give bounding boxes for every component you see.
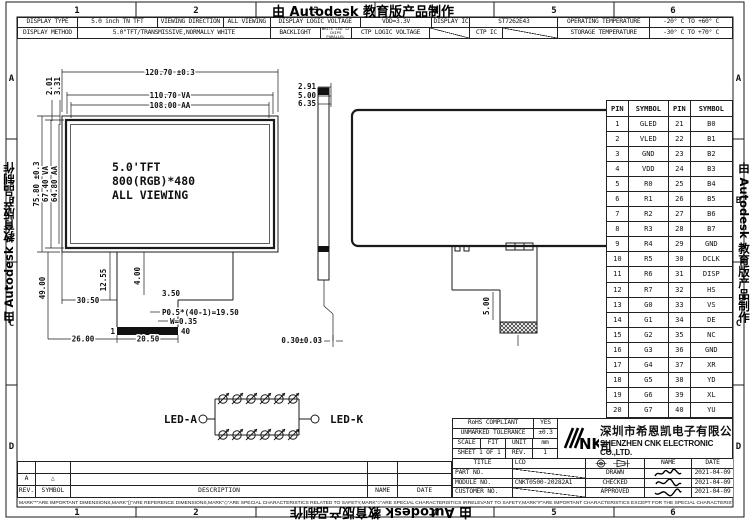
scale-label: SCALE [453,439,481,449]
panel-label-resolution: 800(RGB)*480 [112,174,195,188]
pin-number-cell: 21 [669,117,691,132]
pin-row: 12R732HS [607,283,732,298]
rohs-value: YES [534,419,558,429]
pin-number-cell: 24 [669,162,691,177]
pin-number-cell: 36 [669,343,691,358]
pin-number-cell: 34 [669,313,691,328]
logo-text: NK [579,435,599,453]
pin-symbol-cell: R7 [629,283,669,298]
pin-number-cell: 35 [669,328,691,343]
pin-number-cell: 33 [669,298,691,313]
pin-number-cell: 30 [669,252,691,267]
pin-row: 13G033VS [607,298,732,313]
drawn-date: 2021-04-09 [692,469,733,479]
checked-date: 2021-04-09 [692,479,733,489]
pin-row: 8R328B7 [607,222,732,237]
pin-symbol-cell: R2 [629,207,669,222]
revision-cell [398,474,452,486]
zone-row-label: A [9,74,15,84]
checked-signature [645,479,692,489]
drawn-label: DRAWN [586,469,646,479]
pin-symbol-cell: GND [691,343,732,358]
pin-number-cell: 22 [669,132,691,147]
pin-symbol-cell: G3 [629,343,669,358]
pin-number-cell: 8 [607,222,629,237]
panel-label-size: 5.0'TFT [112,160,161,174]
company-logo: NK [561,422,599,456]
pin-number-cell: 28 [669,222,691,237]
spec-label: CTP LOGIC VOLTAGE [352,28,431,39]
zone-row-label: D [736,442,742,452]
spec-label: CTP IC [470,28,503,39]
pin-number-cell: 4 [607,162,629,177]
spec-value: ALL VIEWING [224,18,271,28]
pin-row: 17G437XR [607,358,732,373]
dim-overall-height: 75.80 ±0.3 [32,161,41,207]
revision-rev: A [18,474,36,486]
drawing-sheet: 1 2 3 4 5 6 1 2 3 4 5 6 A B C D A B C D … [0,0,750,523]
pin-number-cell: 1 [607,117,629,132]
spec-label: BACKLIGHT [271,28,321,39]
pin-row: 7R227B6 [607,207,732,222]
pin-row: 20G740YU [607,403,732,418]
projection-symbol [586,459,646,469]
pin-row: 16G336GND [607,343,732,358]
tolerance-label: UNMARKED TOLERANCE [453,429,534,439]
pin-symbol-cell: R1 [629,192,669,207]
pin-symbol-cell: DE [691,313,732,328]
name-header: NAME [645,459,692,469]
pin-symbol-cell: G4 [629,358,669,373]
pin-symbol-cell: R0 [629,177,669,192]
dim-pin-pitch: P0.5*(40-1)=19.50 [162,308,239,317]
rohs-label: RoHS COMPLIANT [453,419,534,429]
dim-pin-width: W=0.35 [170,317,197,326]
pin-symbol-cell: G0 [629,298,669,313]
pin-number-cell: 40 [669,403,691,418]
back-view: 5.00 [352,104,632,346]
pin-last-label: 40 [181,327,191,336]
spec-value: WHITE LED 12 CHIPS PARALLEL [321,28,352,39]
revision-empty-row [18,462,452,474]
dim-top-right-1: 2.91 [298,82,317,91]
revision-symbol: △ [36,474,71,486]
pin-first-label: 1 [110,327,115,336]
zone-col-label: 1 [74,6,79,16]
pin-number-cell: 5 [607,177,629,192]
pin-number-cell: 25 [669,177,691,192]
pin-number-cell: 18 [607,373,629,388]
revision-table: A △ REV. SYMBOL DESCRIPTION NAME DATE [17,461,452,498]
spec-label: DISPLAY METHOD [18,28,78,39]
dim-bottom-2: 20.50 [137,335,160,344]
pin-row: 3GND23B2 [607,147,732,162]
drawn-signature [645,469,692,479]
scale-value: FIT [481,439,506,449]
title-label: TITLE [453,459,513,469]
pin-symbol-cell: B6 [691,207,732,222]
pin-number-cell: 31 [669,267,691,282]
pin-symbol-cell: XR [691,358,732,373]
revision-cell [71,474,368,486]
pin-symbol-cell: XL [691,388,732,403]
pin-number-cell: 39 [669,388,691,403]
dim-va-width: 110.70 VA [150,91,191,100]
pin-row: 14G134DE [607,313,732,328]
watermark-top: 由 Autodesk 教育版产品制作 [272,1,454,20]
sheet-label: SHEET 1 OF 1 [453,449,506,459]
dim-neck-2: 4.00 [133,266,142,285]
pin-symbol-cell: B3 [691,162,732,177]
module-no-value: CNKT0500-20282A1 [513,479,586,489]
zone-col-label: 5 [551,6,556,16]
pin-symbol-cell: G7 [629,403,669,418]
pin-number-cell: 38 [669,373,691,388]
watermark-left: 由 Autodesk 教育版产品制作 [1,162,17,323]
pin-symbol-cell: GND [691,237,732,252]
pin-number-cell: 37 [669,358,691,373]
spec-value: 5.0 inch TN TFT [78,18,158,28]
dim-aa-width: 108.00 AA [150,101,191,110]
pin-number-cell: 13 [607,298,629,313]
pin-symbol-cell: DISP [691,267,732,282]
spec-value: -30° C TO +70° C [650,28,733,39]
watermark-bottom: 由 Autodesk 教育版产品制作 [290,504,472,523]
zone-col-label: 1 [74,508,79,518]
pin-number-cell: 6 [607,192,629,207]
part-no-value [513,469,586,479]
pin-row: 10R530DCLK [607,252,732,267]
pin-symbol-cell: G6 [629,388,669,403]
company-block: NK 深圳市希恩凯电子有限公司 SHENZHEN CNK ELECTRONIC … [558,419,733,459]
zone-col-label: 2 [193,6,198,16]
pin-symbol-cell: DCLK [691,252,732,267]
zone-col-label: 6 [670,6,675,16]
pin-row: 2VLED22B1 [607,132,732,147]
pin-number-cell: 26 [669,192,691,207]
dim-neck-3: 3.50 [162,289,181,298]
spec-label: VIEWING DIRECTION [158,18,224,28]
pin-row: 18G538YD [607,373,732,388]
revision-cell [368,462,398,474]
pin-row: 4VDD24B3 [607,162,732,177]
dim-top-left-2: 3.31 [53,76,62,95]
pin-number-cell: 27 [669,207,691,222]
dim-aa-height: 64.80 AA [50,165,59,202]
part-no-label: PART NO. [453,469,513,479]
pin-symbol-cell: YU [691,403,732,418]
pin-number-cell: 7 [607,207,629,222]
title-value: LCD [513,459,586,469]
pin-symbol-cell: B4 [691,177,732,192]
watermark-right: 由 Autodesk 教育版产品制作 [736,162,750,323]
pin-number-cell: 16 [607,343,629,358]
pin-header: PIN [607,101,629,117]
pin-symbol-cell: R3 [629,222,669,237]
dim-bottom-1: 26.00 [72,335,95,344]
spec-empty-cell [430,28,470,39]
company-name-en: SHENZHEN CNK ELECTRONIC CO.,LTD. [600,439,732,457]
revision-cell [368,474,398,486]
pin-row: 1GLED21B0 [607,117,732,132]
zone-col-label: 2 [193,508,198,518]
pin-header: SYMBOL [629,101,669,117]
pin-number-cell: 17 [607,358,629,373]
dim-neck-1: 12.55 [99,269,108,292]
spec-value: -20° C TO +60° C [650,18,733,28]
revision-cell [36,462,71,474]
spec-value: 5.0"TFT/TRANSMISSIVE,NORMALLY WHITE [78,28,271,39]
spec-value: ST7262E43 [470,18,558,28]
pin-row: 15G235NC [607,328,732,343]
pin-number-cell: 2 [607,132,629,147]
pin-table-body: 1GLED21B02VLED22B13GND23B24VDD24B35R025B… [607,117,732,418]
pin-symbol-cell: NC [691,328,732,343]
pin-row: 5R025B4 [607,177,732,192]
rev-value: 1 [533,449,558,459]
dim-va-height: 67.40 VA [41,165,50,202]
pin-header: PIN [669,101,691,117]
pin-number-cell: 10 [607,252,629,267]
spec-empty-cell [503,28,558,39]
pin-row: 19G639XL [607,388,732,403]
pin-number-cell: 20 [607,403,629,418]
pin-number-cell: 11 [607,267,629,282]
tolerance-value: ±0.3 [534,429,558,439]
zone-col-label: 6 [670,508,675,518]
revision-cell [71,462,368,474]
pin-symbol-cell: HS [691,283,732,298]
spec-label: DISPLAY TYPE [18,18,78,28]
pin-symbol-cell: B1 [691,132,732,147]
pin-symbol-cell: G1 [629,313,669,328]
spec-row-2: DISPLAY METHOD 5.0"TFT/TRANSMISSIVE,NORM… [18,28,733,39]
rev-label: REV. [506,449,533,459]
pin-symbol-cell: VDD [629,162,669,177]
zone-col-label: 5 [551,508,556,518]
led-cathode-label: LED-K [330,413,363,426]
pin-symbol-cell: VLED [629,132,669,147]
led-circuit: LED-A LED-K [164,393,364,440]
pin-symbol-cell: R6 [629,267,669,282]
dim-thickness: 0.30±0.03 [281,336,322,345]
pin-number-cell: 15 [607,328,629,343]
led-anode-label: LED-A [164,413,197,426]
pin-symbol-cell: R4 [629,237,669,252]
zone-row-label: D [9,442,15,452]
pin-number-cell: 23 [669,147,691,162]
dim-tail-length: 49.00 [38,276,47,299]
dim-connector-height: 5.00 [482,296,491,315]
pin-symbol-cell: YD [691,373,732,388]
revision-entry-row: A △ [18,474,452,486]
zone-row-label: A [736,74,742,84]
pin-symbol-cell: B2 [691,147,732,162]
pin-number-cell: 12 [607,283,629,298]
pin-symbol-cell: G5 [629,373,669,388]
unit-label: UNIT [506,439,533,449]
pin-symbol-cell: R5 [629,252,669,267]
pin-number-cell: 9 [607,237,629,252]
dim-top-right-3: 6.35 [298,99,316,108]
pin-header: SYMBOL [691,101,732,117]
title-block: RoHS COMPLIANT YES UNMARKED TOLERANCE ±0… [452,418,733,498]
date-header: DATE [692,459,733,469]
revision-cell [398,462,452,474]
pin-symbol-cell: GLED [629,117,669,132]
pin-table: PIN SYMBOL PIN SYMBOL 1GLED21B02VLED22B1… [606,100,733,419]
checked-label: CHECKED [586,479,646,489]
pin-symbol-cell: VS [691,298,732,313]
pin-symbol-cell: G2 [629,328,669,343]
pin-row: 6R126B5 [607,192,732,207]
pin-number-cell: 19 [607,388,629,403]
first-angle-projection-icon [593,459,637,468]
module-no-label: MODULE NO. [453,479,513,489]
pin-symbol-cell: GND [629,147,669,162]
dim-tail-offset: 30.50 [77,296,100,305]
pin-number-cell: 3 [607,147,629,162]
revision-cell [18,462,36,474]
unit-value: mm [533,439,558,449]
spec-label: STORAGE TEMPERATURE [558,28,650,39]
pin-number-cell: 32 [669,283,691,298]
spec-label: OPERATING TEMPERATURE [558,18,650,28]
title-block-left: RoHS COMPLIANT YES UNMARKED TOLERANCE ±0… [453,419,558,459]
pin-symbol-cell: B7 [691,222,732,237]
pin-symbol-cell: B5 [691,192,732,207]
panel-label-viewing: ALL VIEWING [112,188,188,202]
pin-number-cell: 29 [669,237,691,252]
pin-row: 9R429GND [607,237,732,252]
pin-symbol-cell: B0 [691,117,732,132]
side-view: 0.30±0.03 [281,88,343,347]
dim-overall-width: 120.70 ±0.3 [145,68,195,77]
spec-table: DISPLAY TYPE 5.0 inch TN TFT VIEWING DIR… [17,17,733,39]
front-view-dimensions: 120.70 ±0.3 110.70 VA 108.00 AA 2.91 5.0… [32,68,331,344]
pin-row: 11R631DISP [607,267,732,282]
pin-number-cell: 14 [607,313,629,328]
pin-table-header: PIN SYMBOL PIN SYMBOL [607,101,732,117]
